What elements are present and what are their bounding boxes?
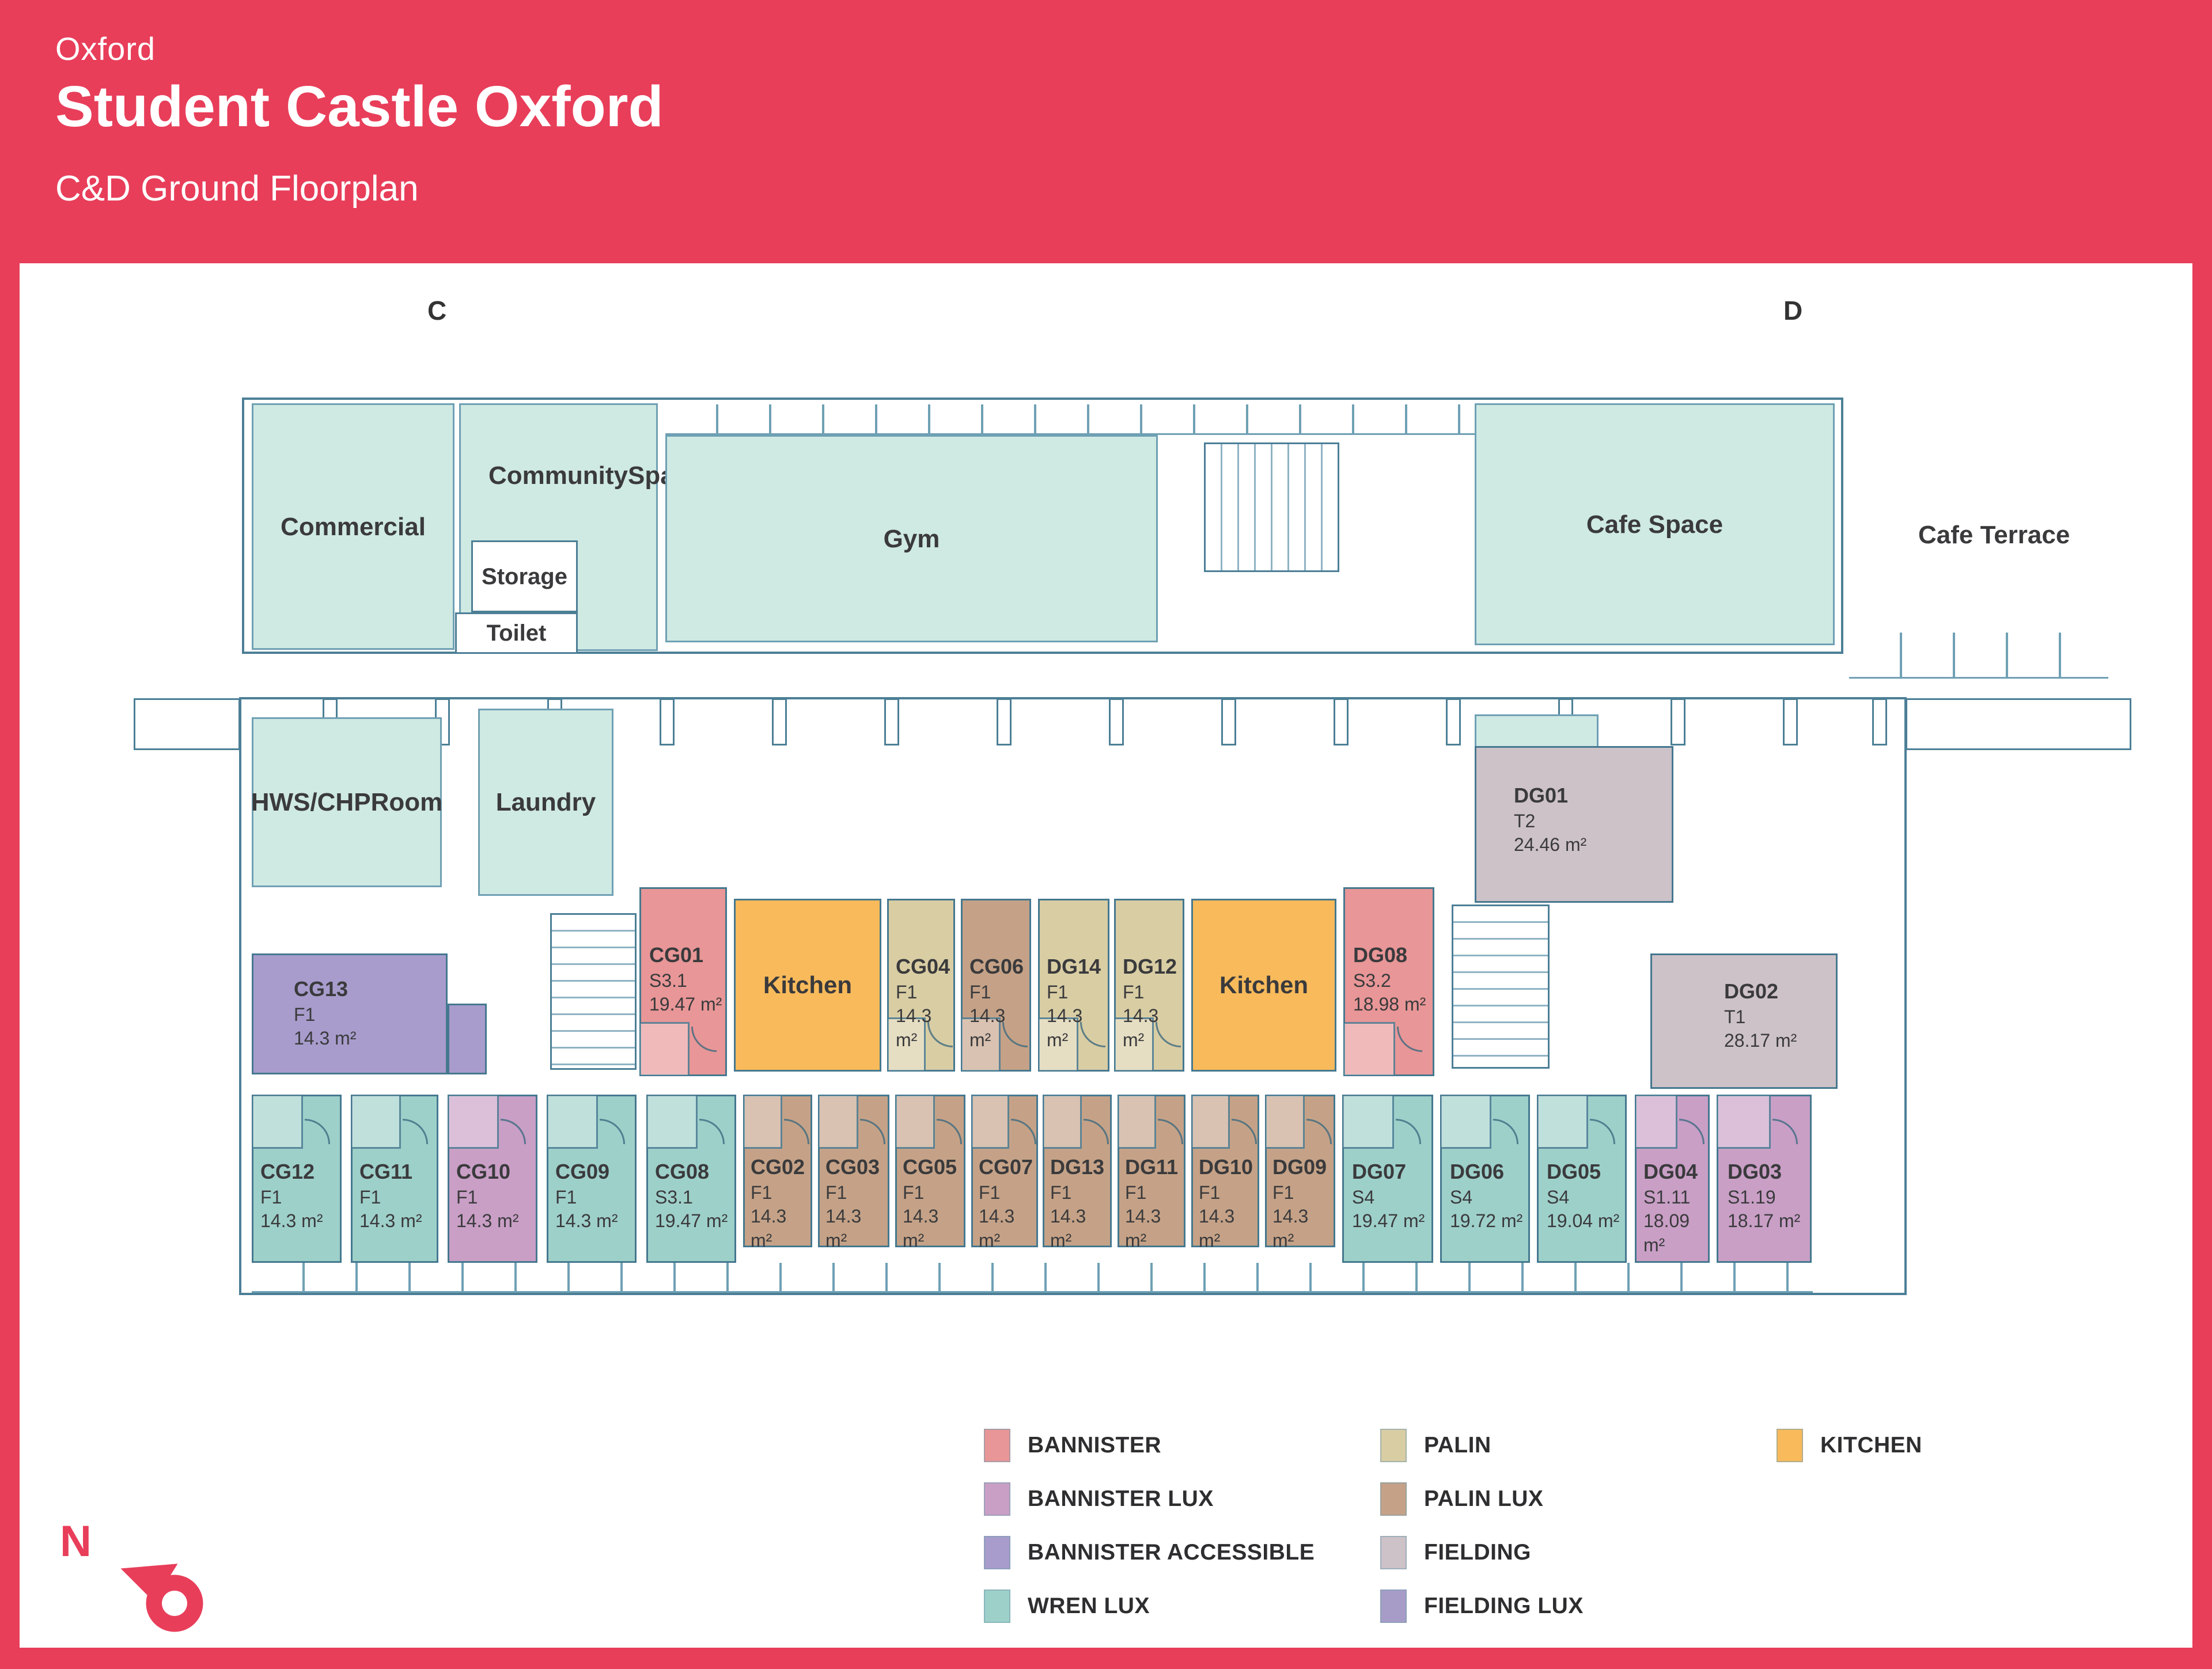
room-label: CG03F114.3 m² xyxy=(825,1154,888,1253)
room-area: 14.3 m² xyxy=(896,1004,953,1052)
bathroom-pod xyxy=(1044,1096,1082,1149)
room-dg13: DG13F114.3 m² xyxy=(1043,1095,1112,1247)
room-type: F1 xyxy=(1125,1181,1184,1205)
room-id: CG05 xyxy=(903,1154,964,1181)
room-cg02: CG02F114.3 m² xyxy=(743,1095,812,1247)
room-cg12: CG12F114.3 m² xyxy=(252,1095,342,1263)
room-area: 19.47 m² xyxy=(1352,1209,1425,1233)
door-arc xyxy=(1679,1119,1705,1144)
door-arc xyxy=(937,1119,962,1144)
bathroom-pod xyxy=(641,1022,690,1075)
room-type: F1 xyxy=(903,1181,964,1205)
legend-swatch-wren_lux xyxy=(984,1589,1010,1623)
room-area: 14.3 m² xyxy=(903,1205,964,1252)
door-arc xyxy=(1493,1119,1518,1144)
north-label: N xyxy=(60,1516,92,1566)
header-city: Oxford xyxy=(55,30,156,67)
room-area: 19.47 m² xyxy=(655,1209,728,1233)
common-area-cafe-space: Cafe Space xyxy=(1475,403,1835,645)
room-cg11: CG11F114.3 m² xyxy=(351,1095,438,1263)
room-type: F1 xyxy=(260,1186,323,1210)
room-type: F1 xyxy=(555,1186,618,1210)
room-label: DG03S1.1918.17 m² xyxy=(1728,1159,1800,1233)
room-cg10: CG10F114.3 m² xyxy=(448,1095,537,1263)
room-dg09: DG09F114.3 m² xyxy=(1265,1095,1335,1247)
door-arc xyxy=(784,1119,809,1144)
room-area: 14.3 m² xyxy=(1272,1205,1334,1252)
bathroom-pod xyxy=(1718,1096,1771,1149)
room-cg08: CG08S3.119.47 m² xyxy=(646,1095,736,1263)
bathroom-pod xyxy=(449,1096,499,1149)
legend-swatch-kitchen xyxy=(1777,1429,1803,1462)
room-label: DG05S419.04 m² xyxy=(1547,1159,1619,1233)
bathroom-pod xyxy=(1441,1096,1491,1149)
bathroom-pod xyxy=(1192,1096,1230,1149)
room-area: 14.3 m² xyxy=(1050,1205,1110,1252)
common-area-hws-chp-room: HWS/CHPRoom xyxy=(252,717,442,887)
bathroom-pod xyxy=(896,1096,935,1149)
room-label: CG10F114.3 m² xyxy=(456,1159,518,1233)
corridor-pillar xyxy=(1334,698,1349,745)
corridor-pillar xyxy=(1446,698,1461,745)
room-label: CG13F114.3 m² xyxy=(294,976,356,1051)
outdoor-label: Cafe Terrace xyxy=(1918,521,2070,550)
room-annex xyxy=(448,1004,487,1074)
bathroom-pod xyxy=(352,1096,401,1149)
room-type: F1 xyxy=(1272,1181,1334,1205)
room-id: DG08 xyxy=(1353,942,1426,969)
room-id: CG12 xyxy=(260,1159,323,1186)
room-type: F1 xyxy=(969,981,1029,1005)
room-area: 18.17 m² xyxy=(1728,1209,1800,1233)
room-cg05: CG05F114.3 m² xyxy=(895,1095,965,1247)
common-area-gym: Gym xyxy=(665,435,1158,642)
room-area: 14.3 m² xyxy=(1125,1205,1184,1252)
room-dg08: DG08S3.218.98 m² xyxy=(1343,887,1434,1076)
legend-label: KITCHEN xyxy=(1820,1433,1922,1458)
room-label: DG13F114.3 m² xyxy=(1050,1154,1110,1253)
room-area: 14.3 m² xyxy=(751,1205,810,1252)
room-label: CG06F114.3 m² xyxy=(969,953,1029,1053)
block-letter-d: D xyxy=(1783,295,1802,326)
door-arc xyxy=(1590,1119,1615,1144)
room-id: CG07 xyxy=(979,1154,1036,1181)
corridor-pillar xyxy=(1221,698,1236,745)
legend-label: FIELDING xyxy=(1424,1540,1531,1565)
legend-item: FIELDING LUX xyxy=(1380,1589,1777,1623)
room-area: 14.3 m² xyxy=(260,1209,323,1233)
room-id: DG10 xyxy=(1199,1154,1257,1181)
room-id: CG10 xyxy=(456,1159,518,1186)
legend-item: WREN LUX xyxy=(984,1589,1380,1623)
door-arc xyxy=(403,1119,428,1144)
room-cg04: CG04F114.3 m² xyxy=(887,899,955,1072)
staircase xyxy=(1452,904,1550,1069)
room-area: 19.47 m² xyxy=(649,993,722,1017)
room-id: DG11 xyxy=(1125,1154,1184,1181)
bathroom-pod xyxy=(972,1096,1009,1149)
room-kitchen: Kitchen xyxy=(734,899,881,1072)
corridor-pillar xyxy=(1872,698,1887,745)
legend-item: PALIN LUX xyxy=(1380,1482,1777,1516)
room-area: 14.3 m² xyxy=(294,1027,356,1051)
room-dg11: DG11F114.3 m² xyxy=(1118,1095,1185,1247)
room-cg07: CG07F114.3 m² xyxy=(971,1095,1038,1247)
room-label: CG07F114.3 m² xyxy=(979,1154,1036,1253)
room-area: 14.3 m² xyxy=(1199,1205,1257,1252)
room-area: 14.3 m² xyxy=(456,1209,518,1233)
bathroom-pod xyxy=(1538,1096,1588,1149)
block-letter-c: C xyxy=(427,295,446,326)
room-id: DG13 xyxy=(1050,1154,1110,1181)
room-dg01: DG01T224.46 m² xyxy=(1475,746,1673,903)
kitchen-label: Kitchen xyxy=(736,900,880,1070)
room-id: CG06 xyxy=(969,953,1029,981)
frame-right xyxy=(2192,263,2212,1669)
common-area-label: Laundry xyxy=(496,786,596,818)
room-label: DG08S3.218.98 m² xyxy=(1353,942,1426,1017)
room-label: CG08S3.119.47 m² xyxy=(655,1159,728,1233)
legend-label: BANNISTER LUX xyxy=(1028,1486,1214,1512)
bathroom-pod xyxy=(1343,1096,1394,1149)
room-type: T2 xyxy=(1514,809,1586,834)
room-id: DG12 xyxy=(1123,953,1183,981)
compass: N xyxy=(55,1513,251,1645)
room-area: 18.98 m² xyxy=(1353,993,1426,1017)
room-area: 24.46 m² xyxy=(1514,833,1586,857)
room-type: S4 xyxy=(1450,1186,1522,1210)
common-area-label: Gym xyxy=(884,523,940,555)
common-area-label: Commercial xyxy=(281,511,426,543)
legend-item: FIELDING xyxy=(1380,1536,1777,1569)
room-label: DG09F114.3 m² xyxy=(1272,1154,1334,1253)
room-type: F1 xyxy=(1199,1181,1257,1205)
room-area: 19.72 m² xyxy=(1450,1209,1522,1233)
service-room-storage: Storage xyxy=(471,540,578,612)
room-type: S1.19 xyxy=(1728,1186,1800,1210)
room-label: DG10F114.3 m² xyxy=(1199,1154,1257,1253)
room-type: F1 xyxy=(456,1186,518,1210)
corridor-stub xyxy=(1906,698,2131,750)
room-type: S3.1 xyxy=(649,969,722,993)
common-area-label: Community xyxy=(488,460,628,491)
room-id: CG11 xyxy=(359,1159,422,1186)
door-arc xyxy=(305,1119,330,1144)
room-label: DG02T128.17 m² xyxy=(1724,978,1797,1053)
room-cg01: CG01S3.119.47 m² xyxy=(639,887,727,1076)
legend-label: WREN LUX xyxy=(1028,1594,1150,1619)
room-dg05: DG05S419.04 m² xyxy=(1537,1095,1627,1263)
room-dg12: DG12F114.3 m² xyxy=(1114,899,1184,1072)
room-id: DG05 xyxy=(1547,1159,1619,1186)
room-type: F1 xyxy=(294,1003,356,1027)
legend-swatch-bannister_lux xyxy=(984,1482,1010,1516)
common-area-label: HWS/CHP xyxy=(251,786,371,818)
room-area: 28.17 m² xyxy=(1724,1029,1797,1053)
room-label: DG01T224.46 m² xyxy=(1514,782,1586,857)
window-strip xyxy=(665,404,1475,435)
room-type: S4 xyxy=(1547,1186,1619,1210)
bathroom-pod xyxy=(548,1096,598,1149)
room-id: CG08 xyxy=(655,1159,728,1186)
room-area: 14.3 m² xyxy=(825,1205,888,1252)
legend-swatch-bannister_accessible xyxy=(984,1536,1010,1569)
window-strip xyxy=(1849,633,2108,679)
staircase xyxy=(1204,442,1339,572)
common-area-commercial: Commercial xyxy=(252,403,454,650)
room-area: 14.3 m² xyxy=(359,1209,422,1233)
corridor-pillar xyxy=(1109,698,1124,745)
room-id: DG09 xyxy=(1272,1154,1334,1181)
room-area: 14.3 m² xyxy=(979,1205,1036,1252)
room-id: CG04 xyxy=(896,953,953,981)
room-label: DG07S419.47 m² xyxy=(1352,1159,1425,1233)
legend-swatch-fielding_lux xyxy=(1380,1589,1407,1623)
door-arc xyxy=(501,1119,526,1144)
service-room-label: Toilet xyxy=(487,619,547,648)
page-title: Student Castle Oxford xyxy=(55,74,664,140)
compass-icon xyxy=(118,1546,213,1641)
room-id: DG14 xyxy=(1047,953,1108,981)
legend-item: PALIN xyxy=(1380,1429,1777,1462)
room-id: CG02 xyxy=(751,1154,810,1181)
bathroom-pod xyxy=(1636,1096,1677,1149)
room-dg03: DG03S1.1918.17 m² xyxy=(1717,1095,1812,1263)
room-label: CG02F114.3 m² xyxy=(751,1154,810,1253)
corridor-pillar xyxy=(1671,698,1685,745)
service-room-label: Storage xyxy=(482,562,567,591)
room-area: 14.3 m² xyxy=(969,1004,1029,1052)
room-type: F1 xyxy=(359,1186,422,1210)
door-arc xyxy=(1397,1027,1422,1052)
room-id: CG13 xyxy=(294,976,356,1003)
staircase xyxy=(550,913,637,1070)
bathroom-pod xyxy=(1344,1022,1395,1075)
room-type: S1.11 xyxy=(1643,1186,1708,1210)
service-room-toilet: Toilet xyxy=(455,612,578,654)
room-label: DG06S419.72 m² xyxy=(1450,1159,1522,1233)
room-id: DG03 xyxy=(1728,1159,1800,1186)
bathroom-pod xyxy=(253,1096,303,1149)
legend-label: BANNISTER xyxy=(1028,1433,1161,1458)
page-subtitle: C&D Ground Floorplan xyxy=(55,168,419,209)
legend: BANNISTERBANNISTER LUXBANNISTER ACCESSIB… xyxy=(984,1418,1922,1633)
room-type: F1 xyxy=(751,1181,810,1205)
kitchen-label: Kitchen xyxy=(1193,900,1335,1070)
room-label: DG14F114.3 m² xyxy=(1047,953,1108,1053)
room-type: F1 xyxy=(825,1181,888,1205)
room-id: CG01 xyxy=(649,942,722,969)
door-arc xyxy=(1011,1119,1036,1144)
corridor-pillar xyxy=(1783,698,1798,745)
corridor-pillar xyxy=(884,698,899,745)
room-type: T1 xyxy=(1724,1005,1797,1030)
room-id: DG07 xyxy=(1352,1159,1425,1186)
door-arc xyxy=(1772,1119,1798,1144)
legend-label: PALIN xyxy=(1424,1433,1491,1458)
room-label: CG12F114.3 m² xyxy=(260,1159,323,1233)
room-dg10: DG10F114.3 m² xyxy=(1191,1095,1259,1247)
room-id: DG06 xyxy=(1450,1159,1522,1186)
room-dg14: DG14F114.3 m² xyxy=(1038,899,1109,1072)
legend-label: BANNISTER ACCESSIBLE xyxy=(1028,1540,1315,1565)
room-cg06: CG06F114.3 m² xyxy=(961,899,1031,1072)
legend-label: PALIN LUX xyxy=(1424,1486,1543,1512)
room-type: F1 xyxy=(896,981,953,1005)
room-id: CG09 xyxy=(555,1159,618,1186)
room-dg04: DG04S1.1118.09 m² xyxy=(1635,1095,1710,1263)
door-arc xyxy=(1084,1119,1109,1144)
corridor-pillar xyxy=(772,698,787,745)
legend-label: FIELDING LUX xyxy=(1424,1594,1584,1619)
bathroom-pod xyxy=(744,1096,782,1149)
legend-swatch-bannister xyxy=(984,1429,1010,1462)
floorplan-page: Oxford Student Castle Oxford C&D Ground … xyxy=(0,0,2212,1669)
room-label: CG01S3.119.47 m² xyxy=(649,942,722,1017)
room-area: 18.09 m² xyxy=(1643,1209,1708,1257)
legend-swatch-palin_lux xyxy=(1380,1482,1407,1516)
room-type: S4 xyxy=(1352,1186,1425,1210)
room-dg06: DG06S419.72 m² xyxy=(1440,1095,1530,1263)
legend-swatch-fielding xyxy=(1380,1536,1407,1569)
room-dg02: DG02T128.17 m² xyxy=(1650,953,1838,1089)
room-type: F1 xyxy=(1123,981,1183,1005)
legend-item: BANNISTER LUX xyxy=(984,1482,1380,1516)
door-arc xyxy=(1396,1119,1421,1144)
room-label: DG04S1.1118.09 m² xyxy=(1643,1159,1708,1258)
common-area-label: Cafe Space xyxy=(1586,509,1723,540)
room-type: S3.2 xyxy=(1353,969,1426,993)
door-arc xyxy=(1158,1119,1183,1144)
corridor-stub xyxy=(134,698,240,750)
room-label: DG11F114.3 m² xyxy=(1125,1154,1184,1253)
room-area: 19.04 m² xyxy=(1547,1209,1619,1233)
door-arc xyxy=(691,1027,717,1052)
room-label: CG04F114.3 m² xyxy=(896,953,953,1053)
page-header: Oxford Student Castle Oxford C&D Ground … xyxy=(0,0,2212,263)
bathroom-pod xyxy=(819,1096,858,1149)
room-type: F1 xyxy=(1050,1181,1110,1205)
door-arc xyxy=(1232,1119,1257,1144)
corridor-pillar xyxy=(660,698,675,745)
door-arc xyxy=(860,1119,885,1144)
legend-item: BANNISTER ACCESSIBLE xyxy=(984,1536,1380,1569)
bathroom-pod xyxy=(1119,1096,1156,1149)
room-type: S3.1 xyxy=(655,1186,728,1210)
room-dg07: DG07S419.47 m² xyxy=(1342,1095,1433,1263)
room-id: DG04 xyxy=(1643,1159,1708,1186)
room-area: 14.3 m² xyxy=(555,1209,618,1233)
room-type: F1 xyxy=(1047,981,1108,1005)
room-area: 14.3 m² xyxy=(1047,1004,1108,1052)
room-id: CG03 xyxy=(825,1154,888,1181)
frame-bottom xyxy=(0,1648,2212,1669)
room-kitchen: Kitchen xyxy=(1191,899,1336,1072)
room-label: DG12F114.3 m² xyxy=(1123,953,1183,1053)
bathroom-pod xyxy=(647,1096,698,1149)
bathroom-pod xyxy=(1266,1096,1305,1149)
room-cg03: CG03F114.3 m² xyxy=(818,1095,889,1247)
common-area-laundry: Laundry xyxy=(478,709,613,896)
room-id: DG01 xyxy=(1514,782,1586,809)
frame-left xyxy=(0,263,20,1669)
room-label: CG05F114.3 m² xyxy=(903,1154,964,1253)
room-area: 14.3 m² xyxy=(1123,1004,1183,1052)
room-id: DG02 xyxy=(1724,978,1797,1005)
legend-item: BANNISTER xyxy=(984,1429,1380,1462)
door-arc xyxy=(1306,1119,1332,1144)
room-cg09: CG09F114.3 m² xyxy=(547,1095,637,1263)
legend-swatch-palin xyxy=(1380,1429,1407,1462)
legend-item: KITCHEN xyxy=(1777,1429,1922,1462)
door-arc xyxy=(600,1119,625,1144)
window-strip xyxy=(252,1263,1813,1293)
corridor-pillar xyxy=(997,698,1012,745)
room-cg13: CG13F114.3 m² xyxy=(252,953,448,1074)
common-area-label: Room xyxy=(371,786,443,818)
room-type: F1 xyxy=(979,1181,1036,1205)
door-arc xyxy=(699,1119,725,1144)
room-label: CG09F114.3 m² xyxy=(555,1159,618,1233)
room-label: CG11F114.3 m² xyxy=(359,1159,422,1233)
